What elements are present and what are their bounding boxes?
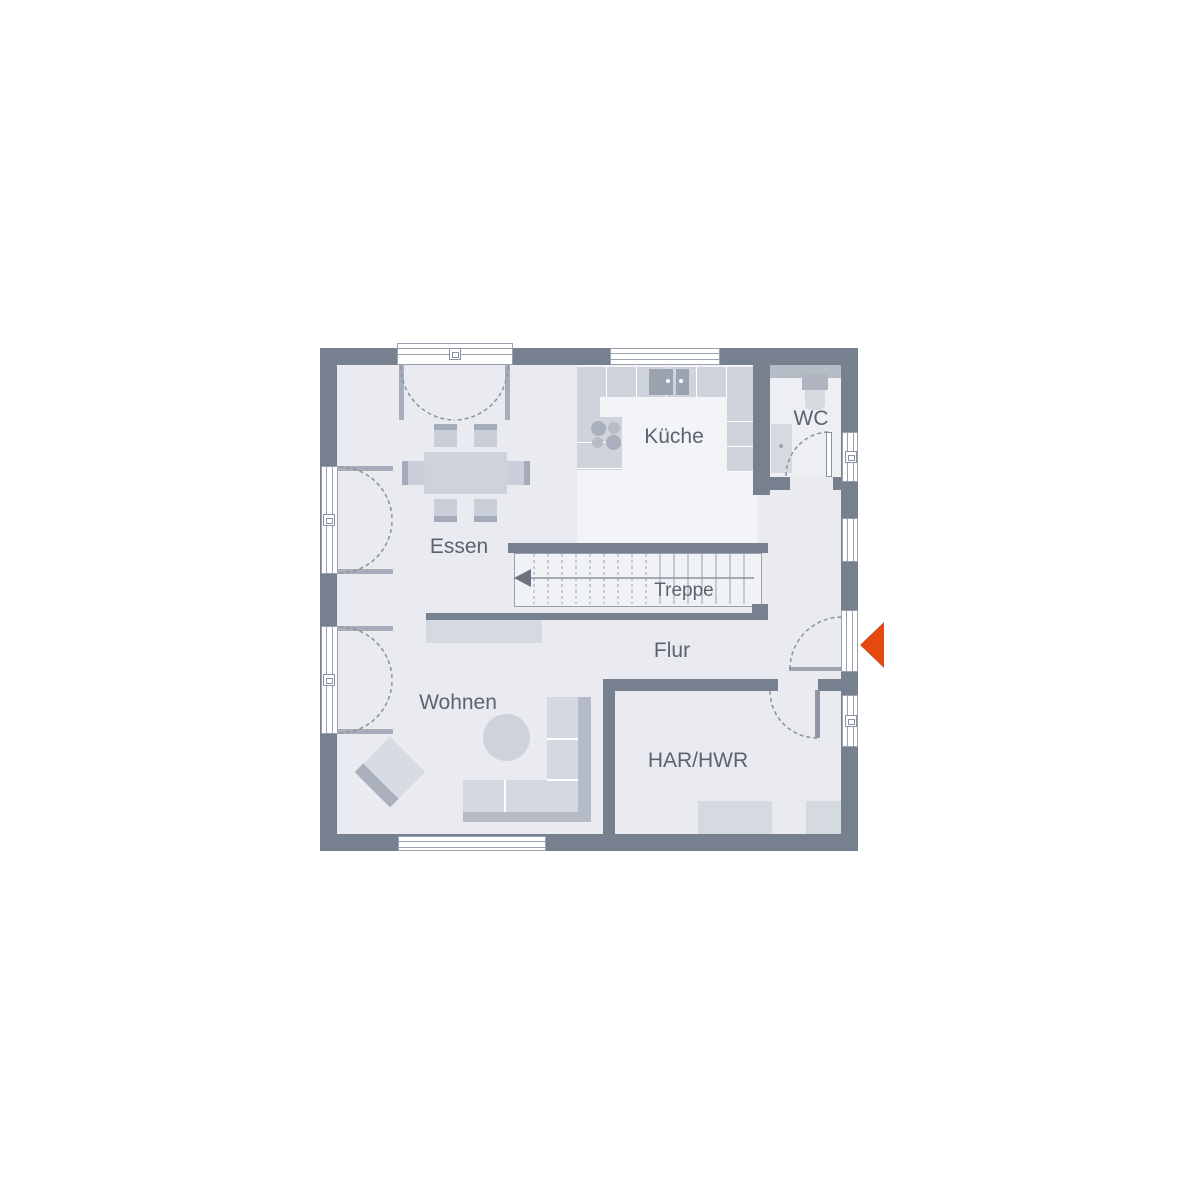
wall-har-top	[603, 679, 778, 691]
room-label-flur: Flur	[654, 639, 690, 663]
window-bottom	[398, 836, 546, 851]
har-door-leaf	[815, 690, 820, 738]
wall-har-left	[603, 679, 615, 835]
window-handle-icon	[845, 451, 857, 463]
entrance-arrow-icon	[860, 622, 884, 668]
dining-chair	[474, 499, 497, 522]
toilet-tank	[802, 374, 828, 390]
stairs-top-stringer	[508, 543, 768, 553]
washbasin-drain-dot	[779, 444, 783, 448]
dining-table	[424, 452, 507, 494]
outer-wall-right	[841, 348, 858, 851]
terrace-door-leaf	[399, 365, 404, 420]
left-door-leaf	[338, 729, 393, 734]
room-label-wc: WC	[794, 407, 829, 431]
entry-door-frame	[841, 610, 858, 672]
dining-chair	[474, 424, 497, 447]
left-door-leaf	[338, 466, 393, 471]
window-right-middle	[842, 518, 858, 562]
cooktop-burner	[606, 435, 621, 450]
left-door-leaf	[338, 569, 393, 574]
sideboard	[426, 620, 542, 643]
outer-wall-left	[320, 348, 337, 851]
left-door-leaf	[338, 626, 393, 631]
room-label-wohnen: Wohnen	[419, 691, 497, 715]
door-handle-icon	[323, 514, 335, 526]
cooktop-burner	[591, 421, 606, 436]
wall-har-top-right	[818, 679, 841, 691]
dining-chair	[507, 461, 530, 485]
cooktop-burner	[592, 437, 603, 448]
appliance	[698, 801, 772, 835]
kitchen-counter-left	[577, 397, 600, 417]
wall-kitchen-wc	[753, 365, 770, 495]
coffee-table-round	[483, 714, 530, 761]
appliance	[806, 801, 843, 835]
wall-wc-bottom	[753, 477, 790, 490]
sofa-backrest-right	[578, 697, 591, 822]
floorplan-canvas: Essen Küche WC Treppe Flur Wohnen HAR/HW…	[0, 0, 1200, 1200]
dining-chair	[402, 461, 425, 485]
sofa-seat-vertical	[547, 697, 578, 812]
sink-faucet-dot	[666, 379, 670, 383]
door-handle-icon	[449, 348, 461, 360]
washbasin	[771, 424, 792, 473]
wc-door-leaf	[826, 432, 832, 477]
room-label-kueche: Küche	[644, 425, 704, 449]
sofa-seat-horizontal	[463, 780, 547, 812]
dining-chair	[434, 424, 457, 447]
terrace-door-leaf	[505, 365, 510, 420]
sofa-backrest-bottom	[463, 812, 591, 822]
window-top	[610, 348, 720, 365]
room-label-treppe: Treppe	[654, 580, 714, 602]
sink-faucet-dot	[679, 379, 683, 383]
window-handle-icon	[845, 715, 857, 727]
cooktop-burner	[608, 422, 620, 434]
room-label-har-hwr: HAR/HWR	[648, 749, 748, 773]
stairs-rail-end	[752, 604, 768, 620]
dining-chair	[434, 499, 457, 522]
staircase-body	[514, 553, 762, 607]
door-handle-icon	[323, 674, 335, 686]
room-label-essen: Essen	[430, 535, 488, 559]
entry-door-leaf	[789, 667, 841, 671]
stairs-guard-rail	[426, 613, 768, 620]
